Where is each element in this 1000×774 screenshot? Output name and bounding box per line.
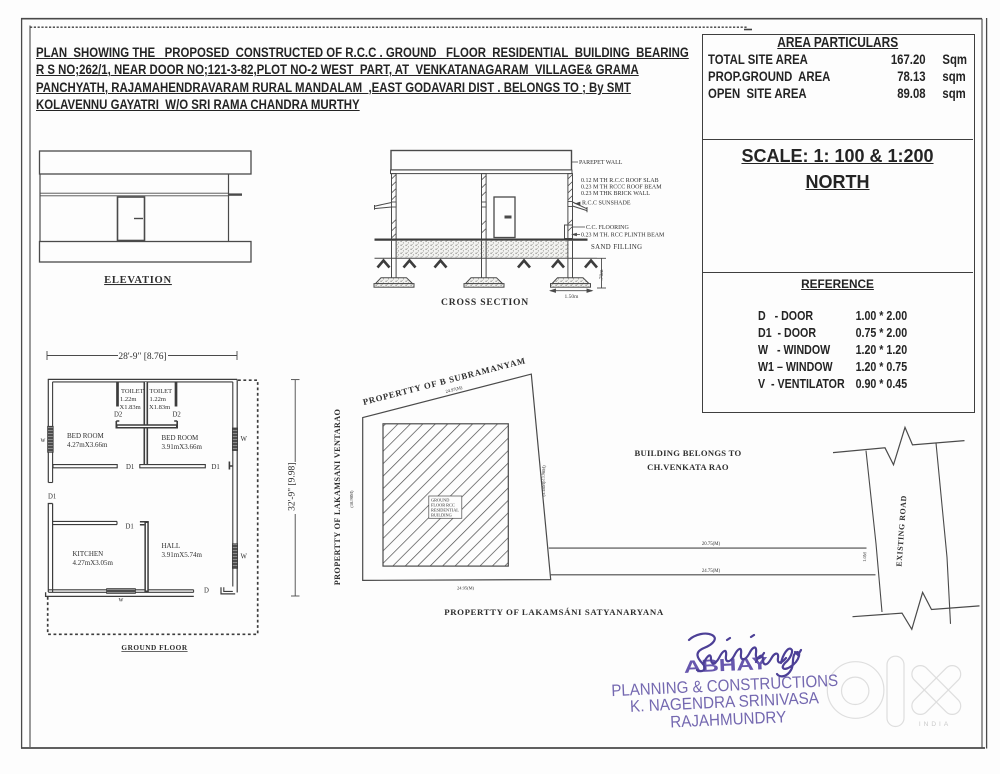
svg-text:W: W (241, 436, 248, 443)
svg-text:BUILDING BELONGS TO: BUILDING BELONGS TO (634, 448, 741, 458)
svg-text:32'-9" [9.98]: 32'-9" [9.98] (288, 463, 298, 511)
svg-text:3.91mX5.74m: 3.91mX5.74m (162, 551, 203, 559)
svg-text:1.50m: 1.50m (565, 294, 580, 300)
svg-text:(5.48M): (5.48M) (541, 481, 546, 496)
svg-text:TOILET: TOILET (150, 388, 173, 395)
svg-text:0.23 M TH. RCC PLINTH BEAM: 0.23 M TH. RCC PLINTH BEAM (581, 233, 665, 239)
svg-text:RAJAHMUNDRY: RAJAHMUNDRY (670, 707, 787, 731)
svg-text:INDIA: INDIA (919, 721, 951, 728)
svg-text:EXISTING ROAD: EXISTING ROAD (895, 495, 909, 567)
svg-text:1.22m: 1.22m (150, 396, 166, 403)
svg-text:D2: D2 (114, 412, 123, 419)
svg-text:0.23 M TH RCCC ROOF BEAM: 0.23 M TH RCCC ROOF BEAM (581, 185, 662, 191)
svg-text:24.75(M): 24.75(M) (702, 569, 721, 574)
svg-text:CH.VENKATA RAO: CH.VENKATA RAO (647, 462, 729, 472)
svg-text:3.91mX3.66m: 3.91mX3.66m (162, 443, 203, 451)
svg-text:R.C.C SUNSHADE: R.C.C SUNSHADE (582, 201, 631, 207)
svg-text:KITCHEN: KITCHEN (73, 550, 104, 558)
svg-text:D1: D1 (48, 494, 56, 501)
svg-text:0.23 M THK BRICK WALL: 0.23 M THK BRICK WALL (581, 191, 650, 197)
svg-text:(23.90M): (23.90M) (540, 465, 547, 483)
svg-text:24.95(M): 24.95(M) (457, 586, 475, 591)
svg-text:.70m: .70m (599, 269, 605, 281)
svg-text:D1: D1 (126, 464, 134, 471)
svg-text:D2: D2 (173, 412, 182, 419)
svg-text:TOILET: TOILET (121, 388, 144, 395)
svg-text:GROUND FLOOR: GROUND FLOOR (121, 643, 187, 652)
svg-text:HALL: HALL (162, 542, 181, 550)
svg-text:PROPERTTY OF LAKAMSANI VENTARA: PROPERTTY OF LAKAMSANI VENTARAO (333, 409, 342, 586)
svg-text:PAREPET WALL: PAREPET WALL (579, 160, 623, 166)
svg-text:28'-9" [8.76]: 28'-9" [8.76] (118, 352, 166, 362)
svg-text:C.C. FLOORING: C.C. FLOORING (586, 225, 630, 231)
svg-text:ELEVATION: ELEVATION (104, 275, 172, 286)
svg-text:SAND FILLING: SAND FILLING (591, 244, 642, 251)
svg-text:BED ROOM: BED ROOM (162, 434, 200, 442)
svg-text:20.75(M): 20.75(M) (702, 542, 721, 547)
svg-text:CROSS SECTION: CROSS SECTION (441, 297, 529, 308)
svg-text:1.22m: 1.22m (120, 396, 136, 403)
svg-text:w: w (119, 597, 124, 604)
svg-text:D1: D1 (212, 464, 220, 471)
svg-text:X1.83m: X1.83m (149, 404, 170, 411)
svg-text:D1: D1 (126, 524, 134, 531)
svg-text:BUILDING: BUILDING (431, 513, 452, 518)
svg-text:4.27mX3.66m: 4.27mX3.66m (67, 441, 108, 449)
svg-text:BED ROOM: BED ROOM (67, 432, 105, 440)
svg-text:w: w (41, 437, 46, 444)
svg-text:(18.90M): (18.90M) (349, 490, 354, 508)
svg-text:W: W (241, 554, 248, 561)
svg-text:1.0M: 1.0M (862, 552, 867, 562)
svg-text:D: D (204, 588, 209, 595)
svg-text:4.27mX3.05m: 4.27mX3.05m (73, 559, 114, 567)
svg-text:0.12 M TH R.C.C ROOF SLAB: 0.12 M TH R.C.C ROOF SLAB (581, 178, 659, 184)
svg-text:X1.83m: X1.83m (120, 404, 141, 411)
svg-text:PROPERTTY OF LAKAMSÁNI SATYANA: PROPERTTY OF LAKAMSÁNI SATYANARYANA (444, 607, 664, 617)
